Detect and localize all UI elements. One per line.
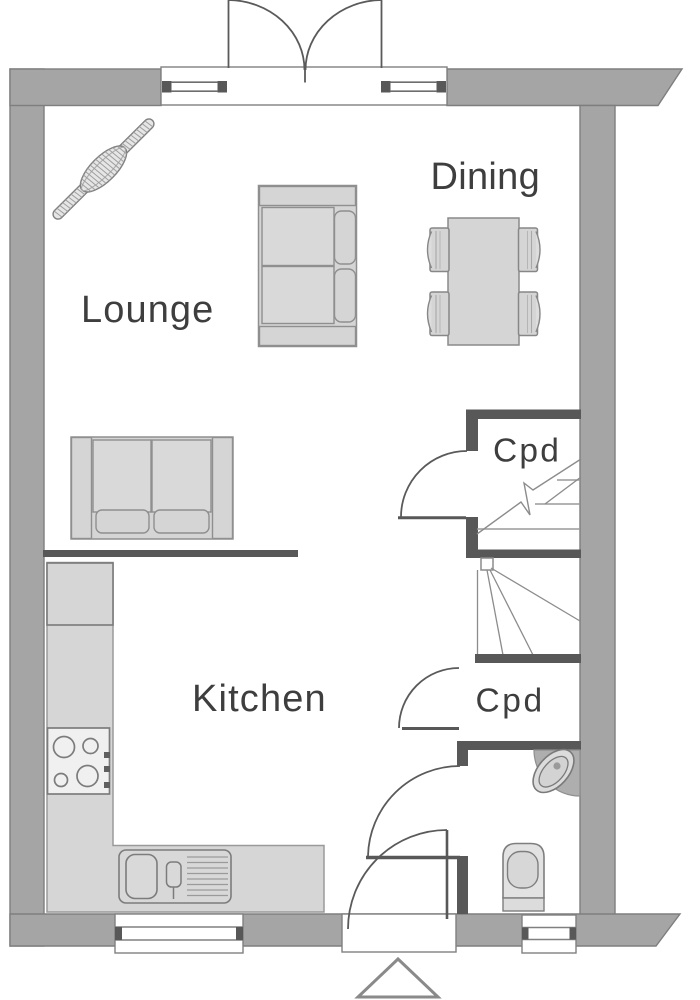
- svg-text:Kitchen: Kitchen: [192, 678, 327, 720]
- svg-text:Dining: Dining: [431, 156, 541, 198]
- svg-text:Cpd: Cpd: [493, 433, 561, 470]
- svg-text:Cpd: Cpd: [476, 683, 545, 720]
- svg-text:Lounge: Lounge: [81, 289, 214, 331]
